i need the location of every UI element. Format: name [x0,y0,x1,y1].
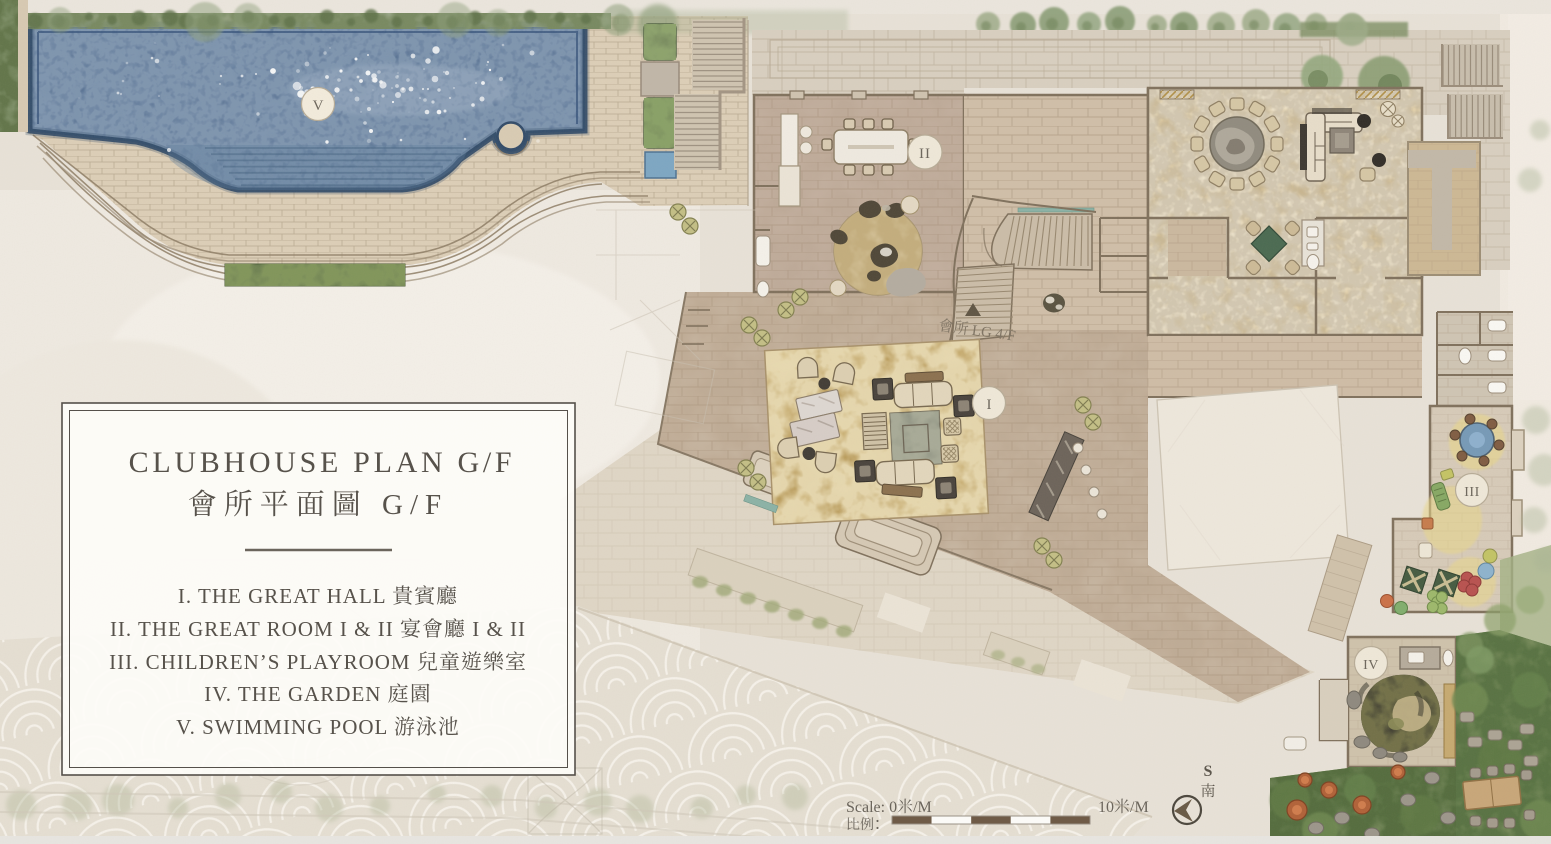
svg-text:II. THE GREAT ROOM I & II 宴會廳: II. THE GREAT ROOM I & II 宴會廳 I & II [110,613,526,643]
svg-text:III. CHILDREN’S PLAYROOM 兒童遊樂室: III. CHILDREN’S PLAYROOM 兒童遊樂室 [109,646,527,676]
svg-text:I. THE GREAT HALL 貴賓廳: I. THE GREAT HALL 貴賓廳 [178,580,458,610]
svg-text:10米/M: 10米/M [1098,794,1149,817]
svg-text:CLUBHOUSE PLAN G/F: CLUBHOUSE PLAN G/F [129,446,516,479]
svg-text:會所平面圖 G/F: 會所平面圖 G/F [188,482,448,523]
svg-text:S: S [1204,763,1213,780]
svg-text:比例：: 比例： [846,814,888,834]
svg-text:南: 南 [1200,780,1215,801]
svg-text:IV. THE GARDEN 庭園: IV. THE GARDEN 庭園 [204,678,431,708]
svg-text:V. SWIMMING POOL 游泳池: V. SWIMMING POOL 游泳池 [176,711,460,741]
